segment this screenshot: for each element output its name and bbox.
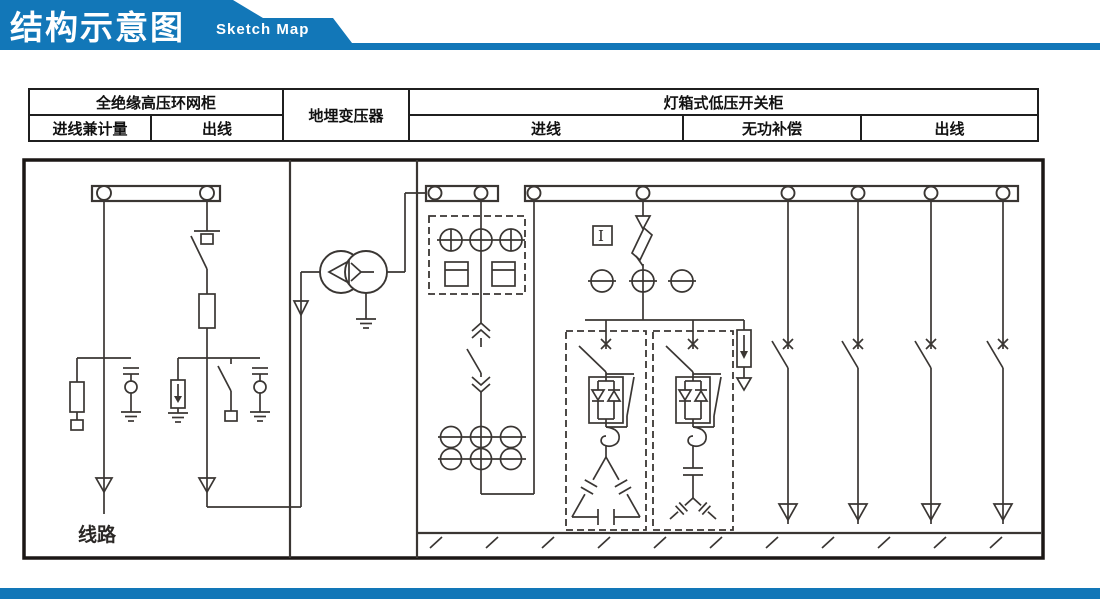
hv-outgoing-way — [168, 193, 301, 507]
capacitor-branch-delta — [566, 320, 646, 530]
surge-arrester-icon — [737, 320, 751, 390]
energy-meter-icon — [492, 262, 515, 286]
fuse-icon — [70, 382, 84, 412]
feeder-2 — [842, 193, 867, 524]
current-transformer-icon — [588, 270, 696, 292]
wye-capacitor-icon — [670, 457, 716, 519]
earthing-switch-icon — [218, 358, 237, 421]
voltage-indicator-icon — [250, 368, 270, 421]
sketch-map-page: 结构示意图 Sketch Map 全绝缘高压环网柜 地埋变压器 灯箱式低压开关柜… — [0, 0, 1100, 599]
transformer-section — [294, 193, 426, 507]
fuse-switch-icon — [632, 228, 652, 266]
instrument-marker: I — [598, 227, 604, 245]
footer-stripe — [0, 588, 1100, 599]
lv-outgoing-feeders — [772, 193, 1012, 524]
line-label: 线路 — [78, 523, 117, 546]
single-line-diagram: 线路 — [0, 0, 1100, 599]
lv-incoming-busbar — [426, 186, 498, 201]
ground-icon — [356, 319, 376, 328]
arrow-icon — [636, 216, 650, 229]
capacitor-branch-wye — [653, 320, 733, 530]
metering-unit — [429, 201, 525, 323]
hv-busbar — [92, 186, 220, 201]
lv-incoming-way — [426, 186, 534, 494]
feeder-4 — [987, 193, 1012, 524]
hv-incoming-metering-way — [70, 193, 141, 514]
transformer-icon — [320, 251, 387, 293]
compensation-way: I — [566, 193, 751, 530]
drawout-breaker-icon — [467, 323, 490, 392]
terminal-box-icon — [71, 420, 83, 430]
load-break-switch-icon — [191, 231, 220, 269]
surge-arrester-icon — [168, 358, 188, 422]
feeder-1 — [772, 193, 797, 524]
fuse-icon — [199, 294, 215, 328]
energy-meter-icon — [445, 262, 468, 286]
current-transformer-icon — [438, 392, 526, 494]
voltage-indicator-icon — [121, 368, 141, 421]
ground-bus — [417, 533, 1041, 548]
lv-main-busbar — [525, 186, 1018, 201]
delta-capacitor-icon — [572, 457, 640, 525]
feeder-3 — [915, 193, 940, 524]
